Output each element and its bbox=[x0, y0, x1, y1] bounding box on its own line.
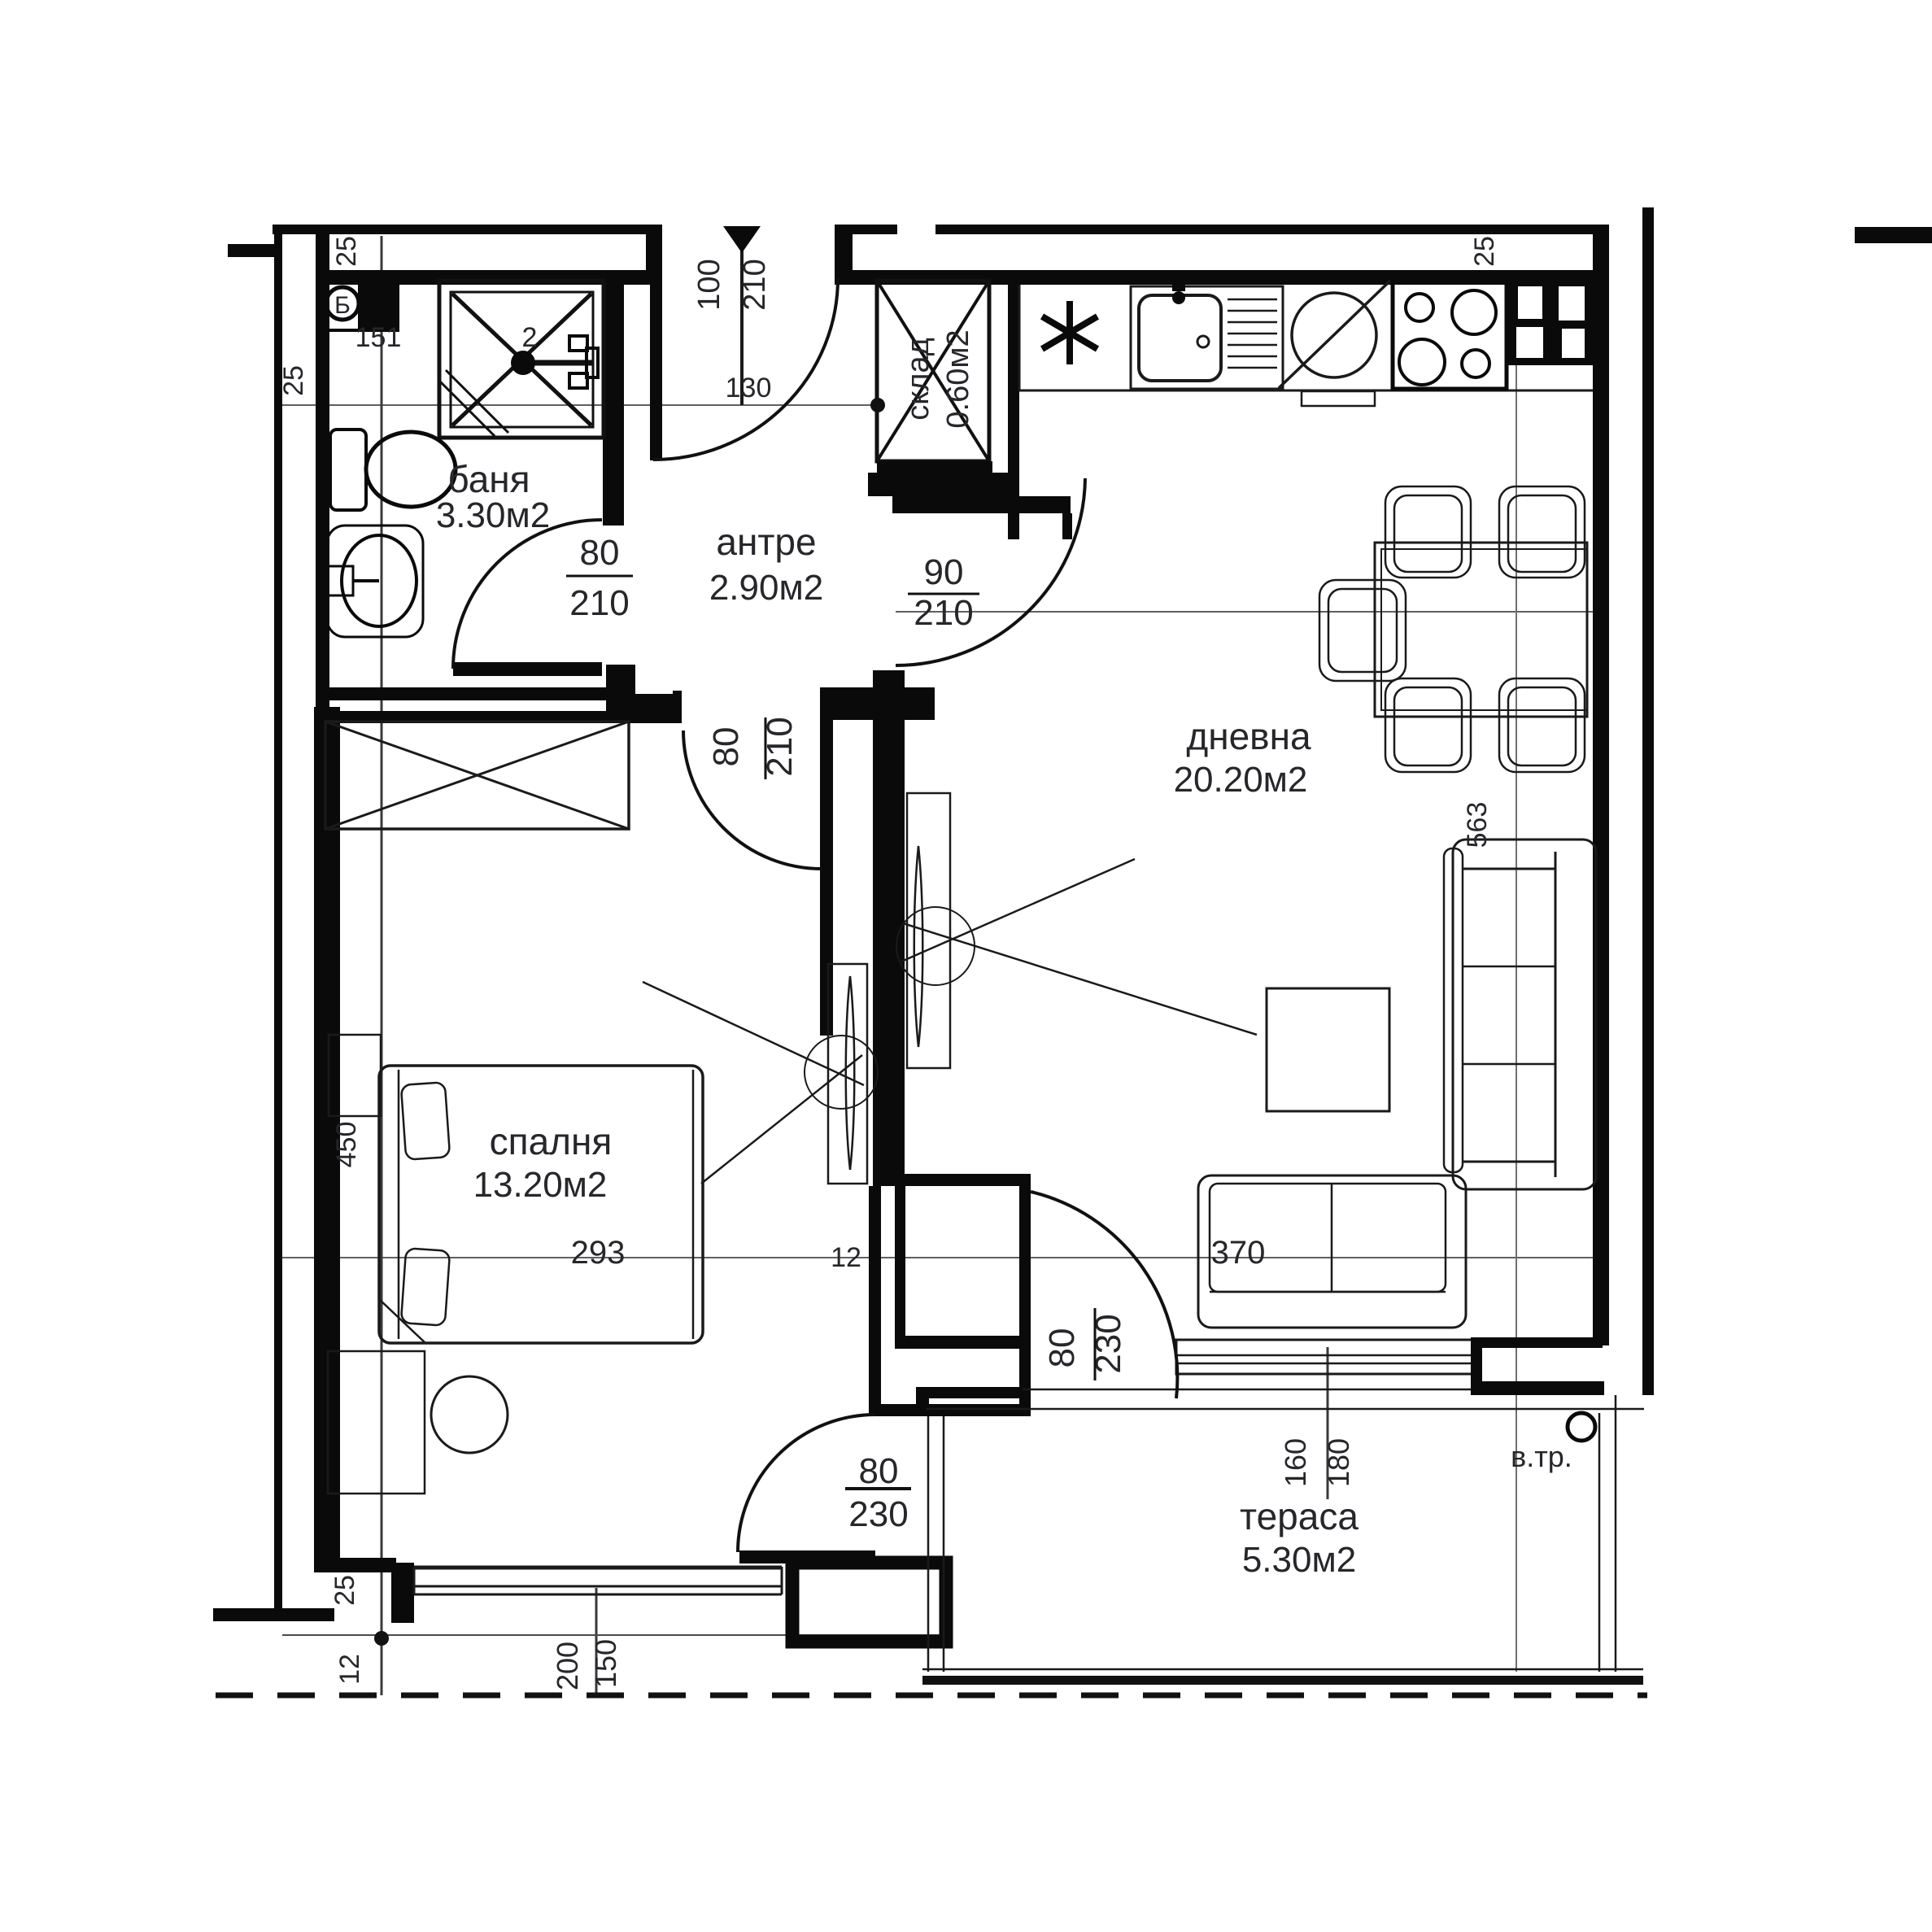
svg-text:230: 230 bbox=[848, 1494, 908, 1534]
svg-text:25: 25 bbox=[1469, 236, 1500, 267]
svg-text:80: 80 bbox=[580, 533, 620, 573]
svg-text:12: 12 bbox=[831, 1242, 861, 1273]
svg-text:200: 200 bbox=[551, 1642, 584, 1690]
svg-text:210: 210 bbox=[914, 593, 973, 633]
svg-text:5.30м2: 5.30м2 bbox=[1242, 1540, 1356, 1580]
svg-text:2: 2 bbox=[522, 322, 538, 353]
svg-text:450: 450 bbox=[331, 1122, 362, 1168]
svg-text:293: 293 bbox=[571, 1235, 626, 1271]
svg-text:25: 25 bbox=[331, 236, 362, 267]
svg-text:антре: антре bbox=[716, 521, 816, 563]
svg-text:25: 25 bbox=[329, 1575, 360, 1606]
svg-text:Б: Б bbox=[334, 292, 351, 319]
svg-text:дневна: дневна bbox=[1186, 715, 1311, 757]
svg-text:склад: склад bbox=[901, 338, 935, 421]
svg-text:130: 130 bbox=[726, 373, 772, 403]
svg-text:3.30м2: 3.30м2 bbox=[436, 495, 550, 535]
svg-text:90: 90 bbox=[924, 552, 964, 592]
svg-text:в.тр.: в.тр. bbox=[1511, 1440, 1572, 1473]
svg-text:тераса: тераса bbox=[1240, 1495, 1359, 1537]
svg-text:370: 370 bbox=[1211, 1235, 1266, 1271]
svg-text:210: 210 bbox=[738, 259, 772, 310]
svg-text:20.20м2: 20.20м2 bbox=[1174, 760, 1308, 800]
svg-text:80: 80 bbox=[706, 727, 746, 767]
svg-text:160: 160 bbox=[1279, 1438, 1312, 1487]
svg-text:180: 180 bbox=[1322, 1438, 1355, 1487]
svg-text:12: 12 bbox=[334, 1654, 365, 1685]
svg-text:100: 100 bbox=[692, 259, 726, 310]
svg-text:спалня: спалня bbox=[490, 1120, 613, 1162]
svg-text:210: 210 bbox=[569, 583, 629, 623]
svg-text:80: 80 bbox=[859, 1451, 899, 1491]
svg-text:25: 25 bbox=[278, 365, 309, 396]
svg-text:150: 150 bbox=[589, 1639, 622, 1688]
svg-text:баня: баня bbox=[447, 458, 530, 500]
svg-text:563: 563 bbox=[1462, 802, 1493, 848]
svg-text:13.20м2: 13.20м2 bbox=[473, 1165, 608, 1205]
svg-text:151: 151 bbox=[355, 322, 402, 353]
svg-text:0.60м2: 0.60м2 bbox=[941, 329, 975, 428]
svg-text:2.90м2: 2.90м2 bbox=[709, 568, 823, 608]
svg-text:80: 80 bbox=[1042, 1328, 1082, 1368]
